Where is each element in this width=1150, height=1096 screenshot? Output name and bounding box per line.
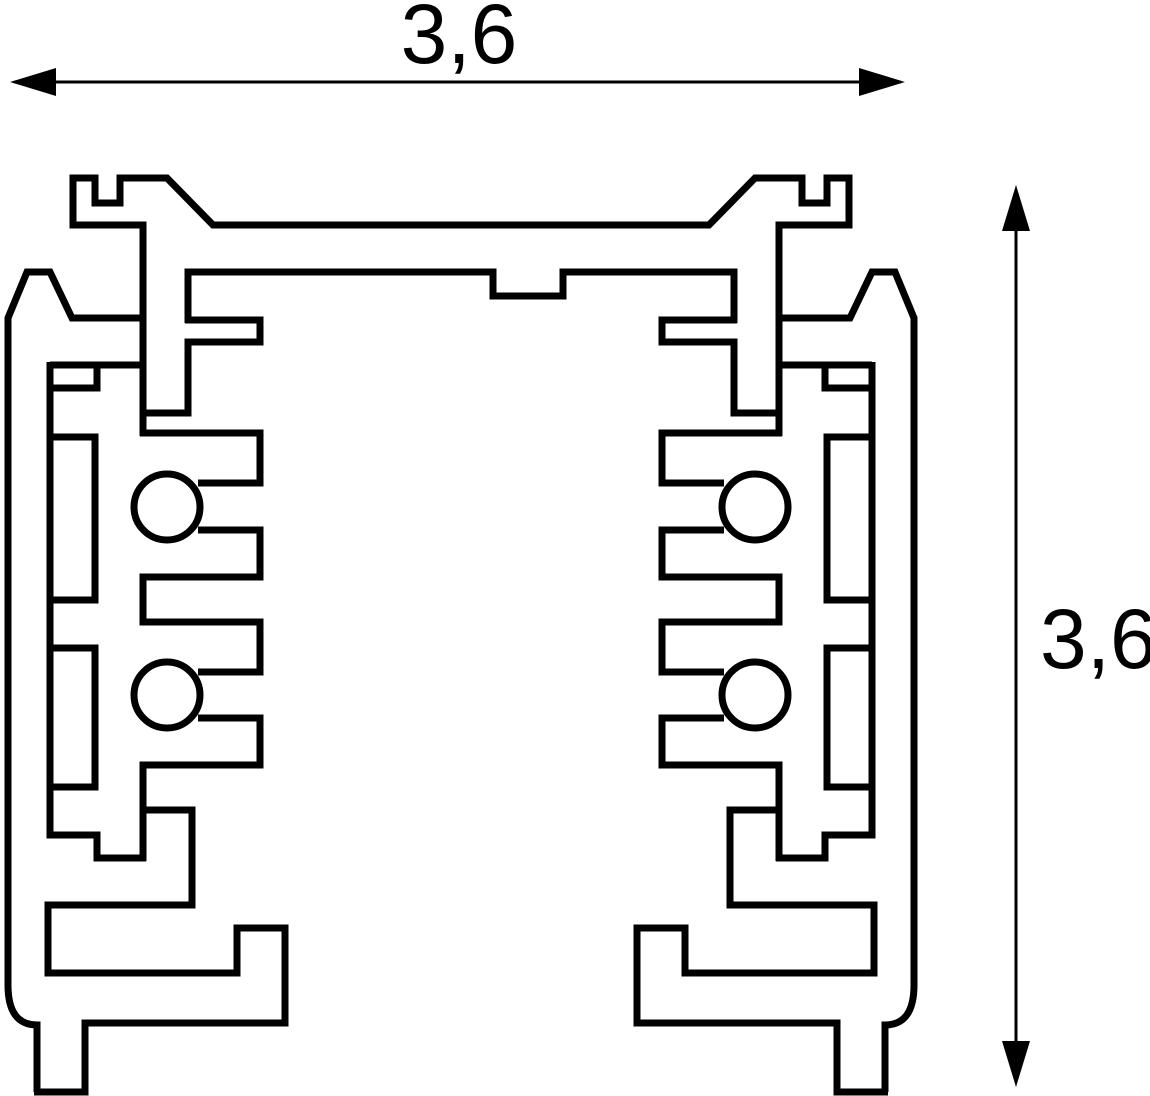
outer-wall-right	[776, 272, 914, 1092]
height-dimension-label: 3,6	[1040, 592, 1150, 686]
conductor-hole-right-top	[722, 474, 788, 540]
conductor-hole-left-bottom	[134, 662, 200, 728]
conductor-pocket-left-bottom	[50, 648, 95, 787]
left-arrowhead-icon	[10, 68, 56, 96]
outer-wall-left	[8, 272, 146, 1092]
upper-tooth-right	[662, 320, 779, 413]
upper-tooth-left	[143, 320, 260, 413]
conductor-pocket-right-bottom	[827, 648, 872, 787]
top-band-inner-notch	[188, 272, 734, 323]
bottom-channel-left	[34, 810, 285, 1092]
bottom-channel-right	[637, 810, 888, 1092]
technical-drawing-canvas: 3,6 3,6	[0, 0, 1150, 1096]
up-arrowhead-icon	[1002, 185, 1030, 231]
vertical-dimension: 3,6	[1002, 185, 1150, 1087]
conductor-hole-left-top	[134, 474, 200, 540]
profile-outline	[8, 178, 914, 1092]
track-profile-diagram: 3,6 3,6	[0, 0, 1150, 1096]
conductor-pocket-right-top	[827, 437, 872, 600]
conductor-pocket-left-top	[50, 437, 95, 600]
down-arrowhead-icon	[1002, 1041, 1030, 1087]
width-dimension-label: 3,6	[401, 0, 518, 81]
right-arrowhead-icon	[859, 68, 905, 96]
horizontal-dimension: 3,6	[10, 0, 905, 96]
conductor-hole-right-bottom	[722, 662, 788, 728]
